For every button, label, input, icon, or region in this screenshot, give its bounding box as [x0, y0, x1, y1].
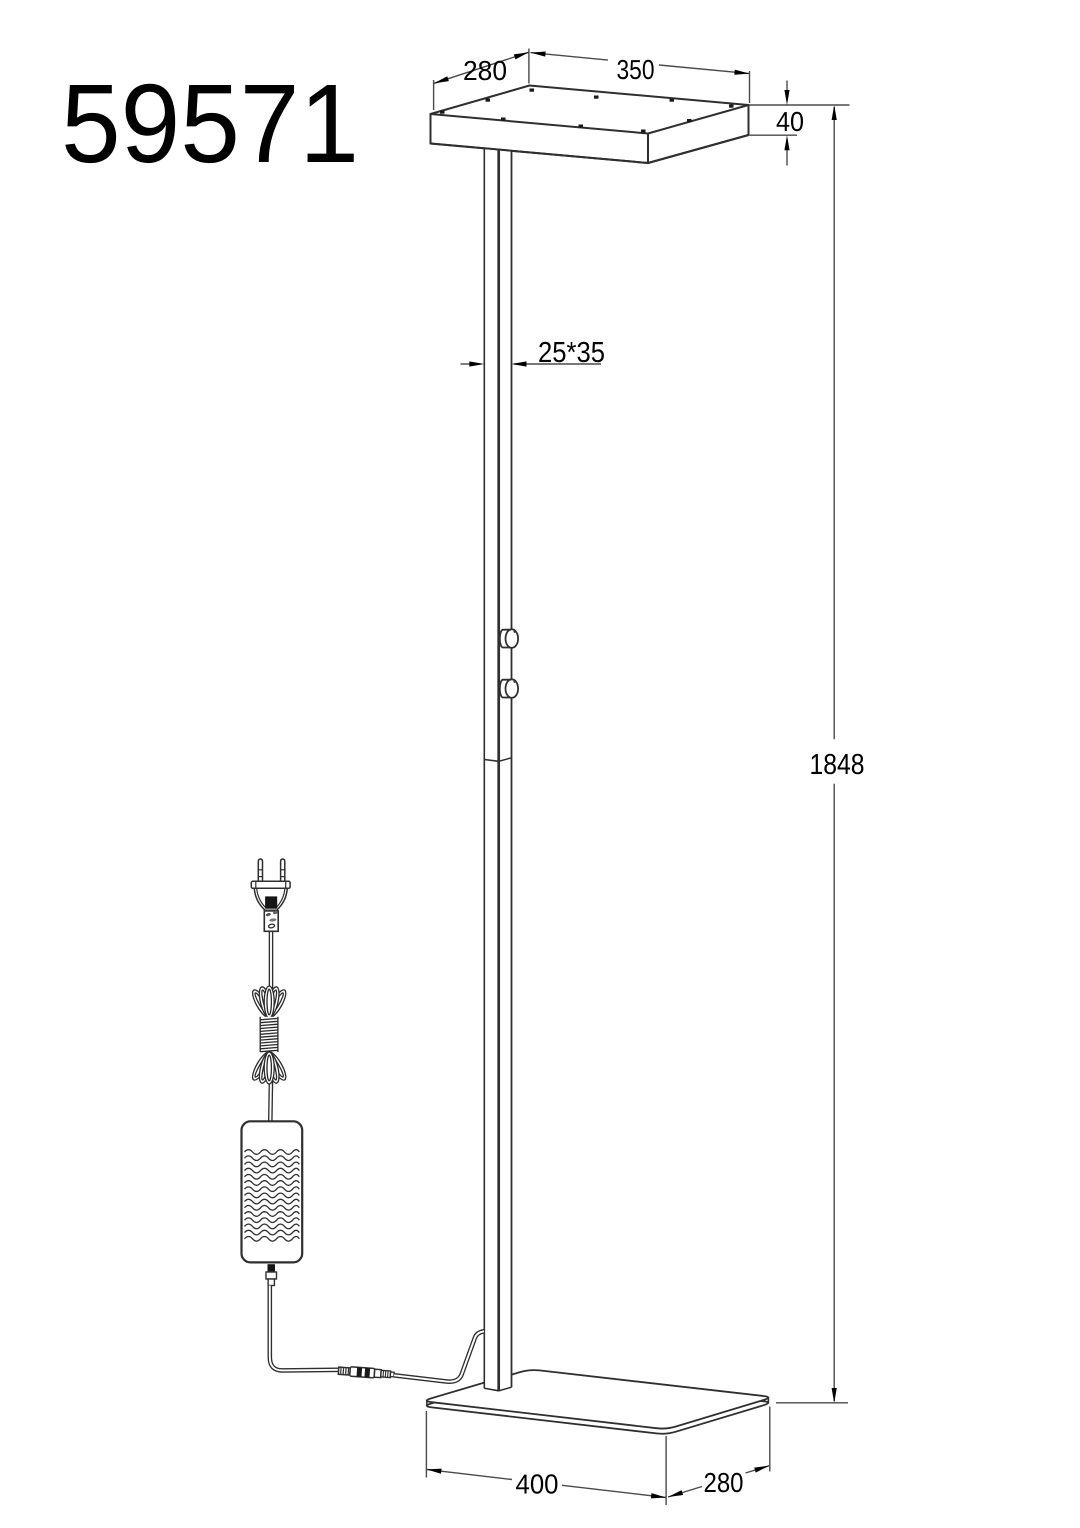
svg-text:40: 40 [776, 106, 804, 137]
svg-text:280: 280 [704, 1467, 744, 1498]
svg-text:400: 400 [516, 1469, 559, 1500]
svg-text:59571: 59571 [61, 61, 359, 186]
svg-text:350: 350 [617, 54, 655, 85]
svg-text:1848: 1848 [810, 749, 865, 781]
svg-text:25*35: 25*35 [538, 337, 605, 369]
svg-text:280: 280 [463, 55, 507, 86]
